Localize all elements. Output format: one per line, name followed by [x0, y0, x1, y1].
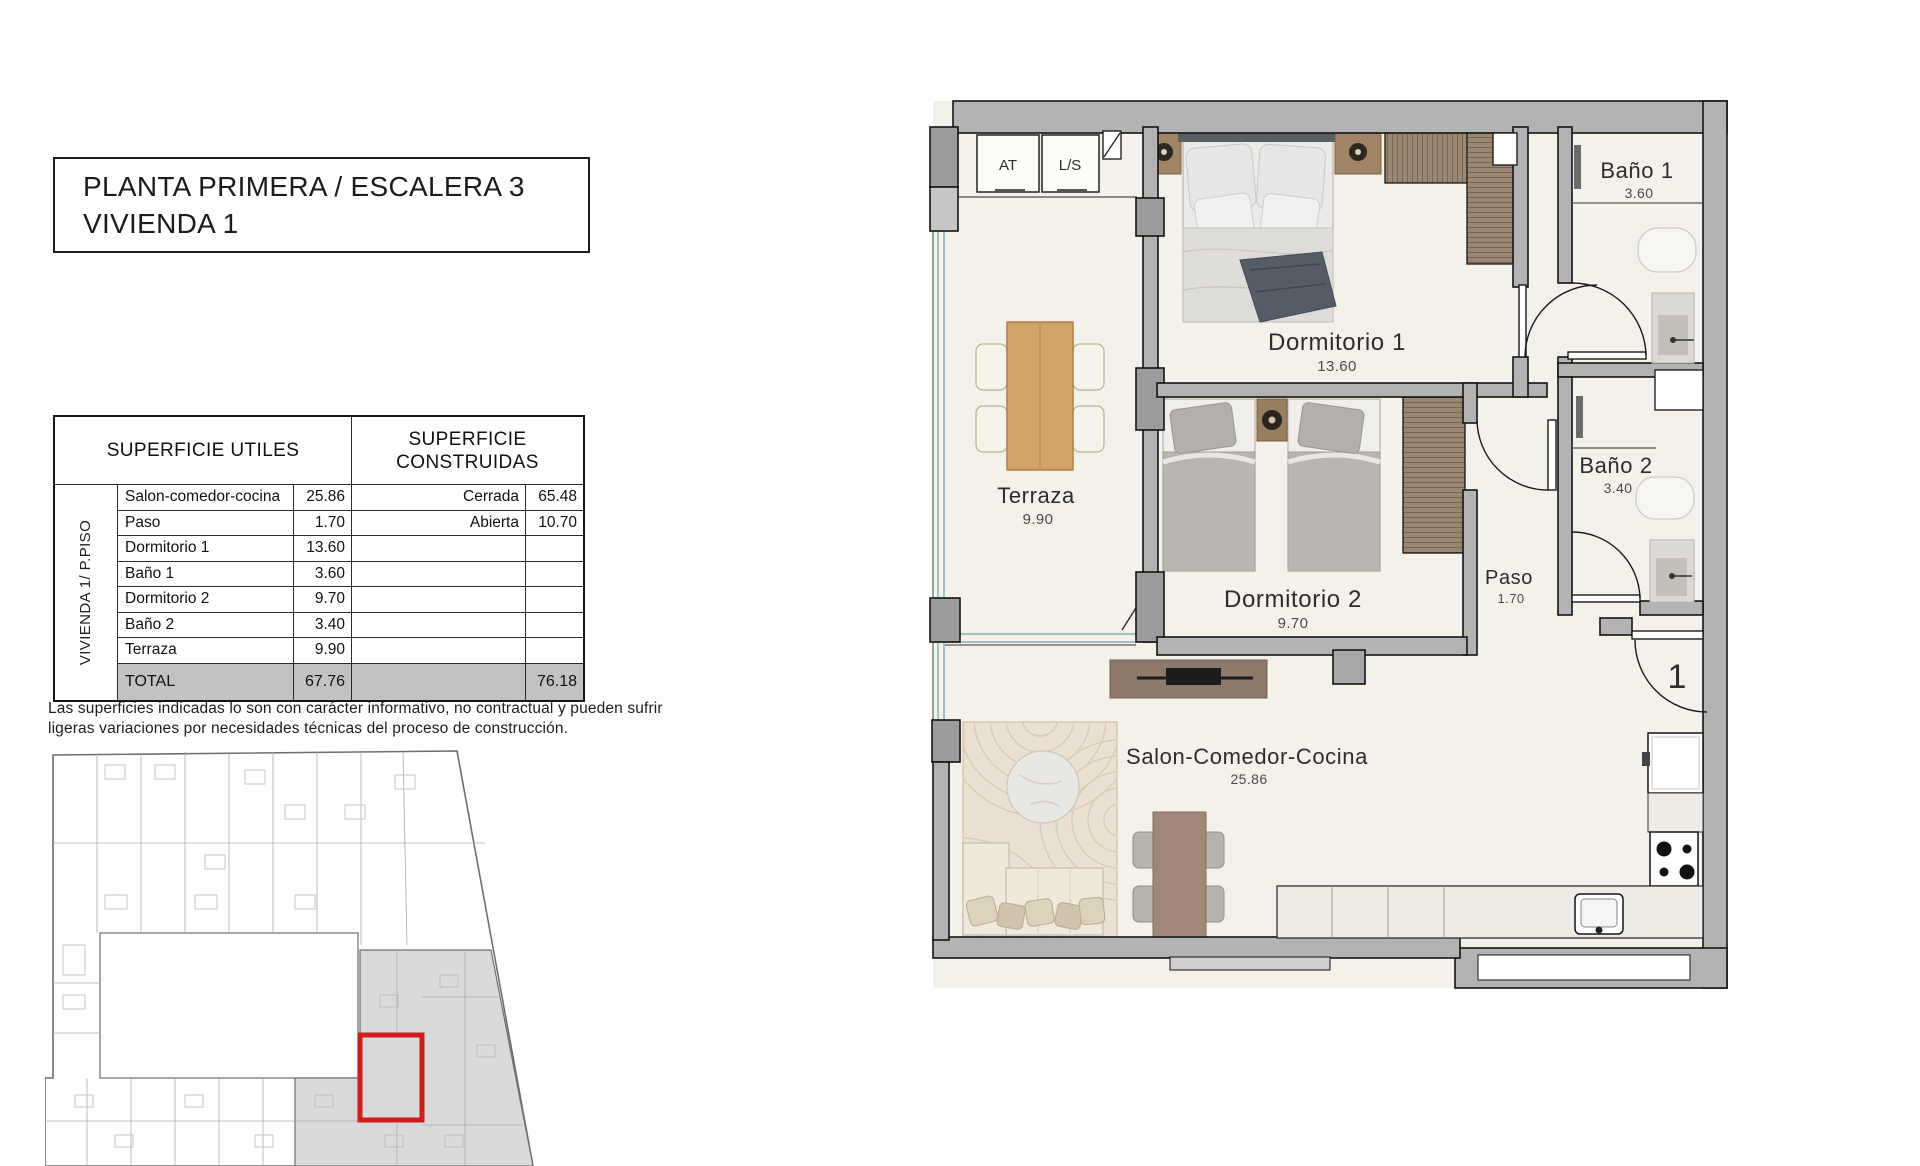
- disclaimer-line1: Las superficies indicadas lo son con car…: [48, 699, 663, 719]
- table-cell-value: 13.60: [294, 536, 351, 561]
- courtyard: [100, 933, 358, 1078]
- entrance-number: 1: [1668, 658, 1687, 696]
- area-salon: 25.86: [1230, 771, 1267, 787]
- table-cell-name: Baño 2: [118, 613, 293, 638]
- table-cell-built-name: Cerrada: [352, 485, 525, 510]
- door-leaf: [1568, 352, 1646, 359]
- table-cell-value: 3.40: [294, 613, 351, 638]
- disclaimer-note: Las superficies indicadas lo son con car…: [48, 699, 663, 738]
- table-cell-value: 9.90: [294, 638, 351, 663]
- disclaimer-line2: ligeras variaciones por necesidades técn…: [48, 719, 663, 739]
- table-cell-built-value: 10.70: [526, 511, 583, 536]
- table-cell-value: 9.70: [294, 587, 351, 612]
- table-cell-name: Terraza: [118, 638, 293, 663]
- plan-title-line2: VIVIENDA 1: [83, 205, 588, 242]
- table-group-label: VIVIENDA 1/ P.PISO: [55, 485, 117, 700]
- area-bano2: 3.40: [1604, 480, 1633, 496]
- table-cell-name: Salon-comedor-cocina: [118, 485, 293, 510]
- counter: [1277, 886, 1703, 938]
- plan-sheet: PLANTA PRIMERA / ESCALERA 3 VIVIENDA 1 S…: [0, 0, 1920, 1166]
- entrance-door-leaf: [1632, 631, 1703, 639]
- window: [1478, 955, 1690, 980]
- table-total-built: 76.18: [526, 664, 583, 700]
- area-bano1: 3.60: [1625, 185, 1654, 201]
- table-header-useful: SUPERFICIE UTILES: [55, 417, 351, 484]
- round-coffee-table: [1007, 751, 1079, 823]
- door-leaf: [1548, 420, 1556, 490]
- bedroom2-wardrobe: [1403, 397, 1465, 553]
- main-floor-plan: Dormitorio 1 13.60 Dormitorio 2 9.70 Bañ…: [928, 85, 1745, 1000]
- table-cell-value: 3.60: [294, 562, 351, 587]
- area-paso: 1.70: [1498, 591, 1525, 606]
- plan-title-line1: PLANTA PRIMERA / ESCALERA 3: [83, 168, 588, 205]
- table-header-built: SUPERFICIE CONSTRUIDAS: [352, 417, 583, 484]
- table-cell-name: Dormitorio 1: [118, 536, 293, 561]
- label-dormitorio1: Dormitorio 1: [1268, 329, 1406, 356]
- label-bano1: Baño 1: [1600, 158, 1673, 183]
- tv: [1166, 668, 1221, 685]
- toilet: [1636, 477, 1694, 519]
- fridge: [1648, 733, 1703, 793]
- door-leaf: [1572, 595, 1640, 602]
- label-bano2: Baño 2: [1579, 453, 1652, 478]
- table-cell-name: Paso: [118, 511, 293, 536]
- title-box: PLANTA PRIMERA / ESCALERA 3 VIVIENDA 1: [53, 157, 590, 253]
- label-terraza: Terraza: [997, 483, 1075, 508]
- table-cell-value: 25.86: [294, 485, 351, 510]
- table-cell-built-value: 65.48: [526, 485, 583, 510]
- table-total-label: TOTAL: [118, 664, 293, 700]
- label-salon: Salon-Comedor-Cocina: [1126, 744, 1368, 769]
- area-dormitorio1: 13.60: [1317, 358, 1357, 375]
- door-leaf: [1519, 285, 1526, 357]
- shaft: [1655, 370, 1703, 410]
- label-dormitorio2: Dormitorio 2: [1224, 586, 1362, 613]
- table-total-useful: 67.76: [294, 664, 351, 700]
- label-ls-closet: L/S: [1059, 157, 1082, 174]
- surfaces-table: SUPERFICIE UTILES SUPERFICIE CONSTRUIDAS…: [53, 415, 585, 702]
- table-cell-value: 1.70: [294, 511, 351, 536]
- label-at-closet: AT: [999, 157, 1017, 174]
- label-paso: Paso: [1485, 567, 1533, 589]
- overview-map: [45, 745, 660, 1166]
- toilet: [1638, 228, 1696, 272]
- area-terraza: 9.90: [1023, 511, 1054, 528]
- shaft: [1493, 133, 1517, 165]
- bedroom2-furniture: [1163, 397, 1465, 571]
- tv-unit: [1110, 660, 1267, 698]
- area-dormitorio2: 9.70: [1278, 615, 1309, 632]
- table-cell-built-name: Abierta: [352, 511, 525, 536]
- table-cell-name: Baño 1: [118, 562, 293, 587]
- table-cell-name: Dormitorio 2: [118, 587, 293, 612]
